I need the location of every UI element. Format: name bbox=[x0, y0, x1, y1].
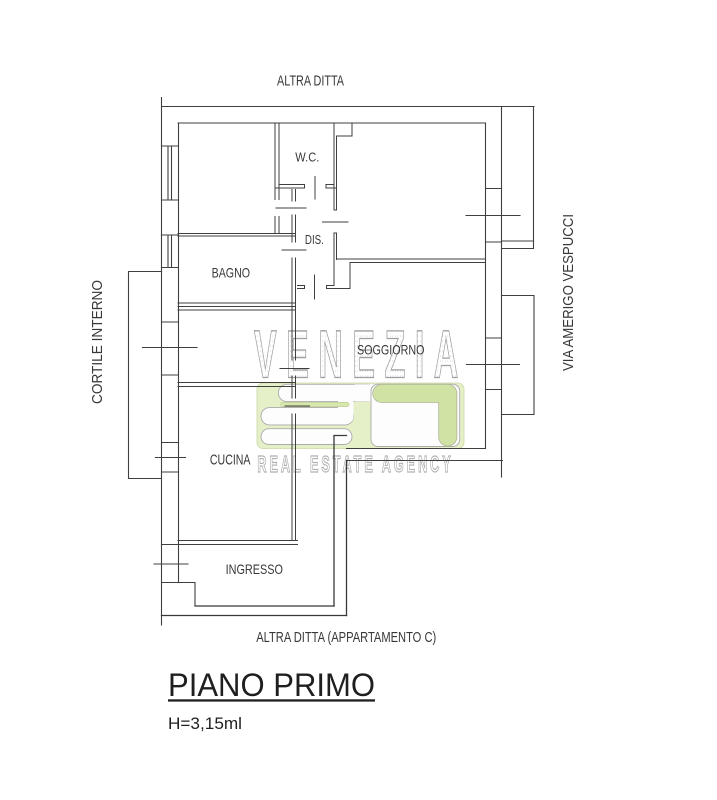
svg-text:VIA AMERIGO VESPUCCI: VIA AMERIGO VESPUCCI bbox=[561, 214, 577, 371]
svg-text:CUCINA: CUCINA bbox=[210, 453, 251, 469]
svg-text:REAL ESTATE AGENCY: REAL ESTATE AGENCY bbox=[257, 451, 453, 477]
svg-text:ALTRA DITTA: ALTRA DITTA bbox=[277, 74, 344, 90]
svg-text:W.C.: W.C. bbox=[295, 150, 319, 164]
svg-text:DIS.: DIS. bbox=[305, 232, 324, 247]
svg-text:BAGNO: BAGNO bbox=[212, 266, 251, 281]
svg-text:CORTILE INTERNO: CORTILE INTERNO bbox=[89, 280, 106, 404]
svg-text:H=3,15ml: H=3,15ml bbox=[168, 714, 242, 733]
svg-text:ALTRA DITTA (APPARTAMENTO C): ALTRA DITTA (APPARTAMENTO C) bbox=[256, 630, 436, 646]
svg-text:PIANO PRIMO: PIANO PRIMO bbox=[168, 667, 375, 703]
svg-text:SOGGIORNO: SOGGIORNO bbox=[357, 342, 425, 358]
svg-text:INGRESSO: INGRESSO bbox=[226, 561, 283, 577]
